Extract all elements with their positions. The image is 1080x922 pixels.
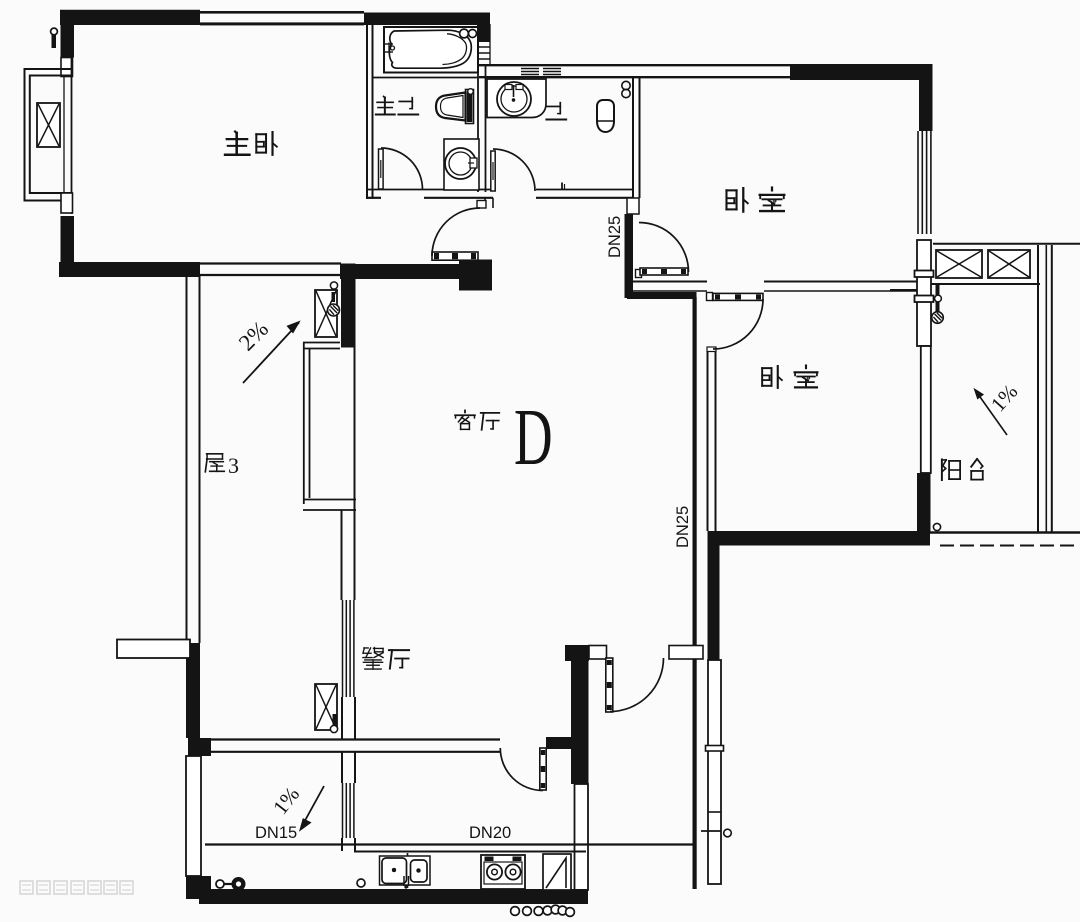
svg-text:DN25: DN25: [674, 506, 692, 548]
svg-text:DN25: DN25: [606, 216, 624, 258]
svg-text:DN15: DN15: [255, 824, 297, 842]
svg-text:3: 3: [228, 453, 239, 478]
svg-text:DN20: DN20: [469, 824, 511, 842]
svg-text:D: D: [514, 392, 553, 482]
